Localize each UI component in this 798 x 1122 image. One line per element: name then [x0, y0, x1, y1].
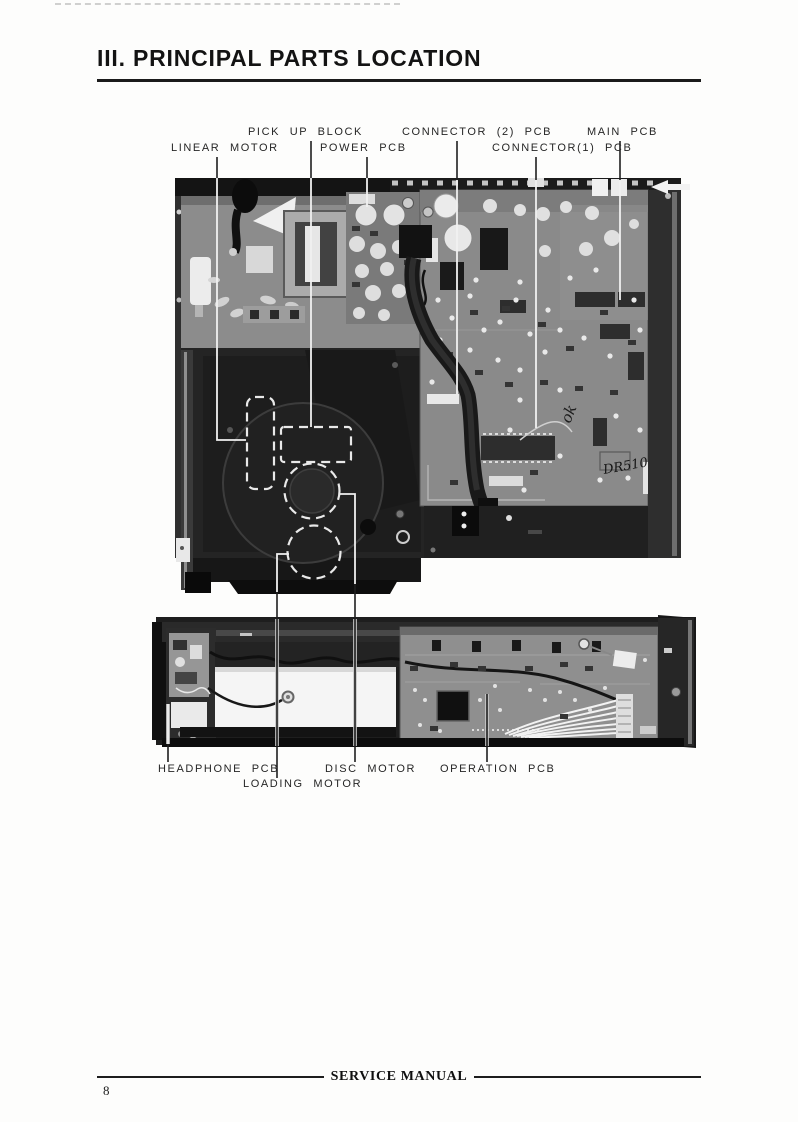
- label-pick-up-block: PICK UP BLOCK: [248, 126, 363, 139]
- headphone-pcb-area: [166, 628, 216, 742]
- bottom-chassis-band: [424, 506, 681, 558]
- label-operation-pcb: OPERATION PCB: [440, 763, 555, 776]
- power-transformer: [284, 211, 348, 297]
- label-linear-motor: LINEAR MOTOR: [171, 142, 279, 155]
- photo-front-panel-rear-view: [152, 615, 696, 748]
- label-loading-motor: LOADING MOTOR: [243, 778, 362, 791]
- footer-rule-left: [97, 1076, 324, 1078]
- main-pcb-board: ok DR5100: [399, 178, 657, 524]
- disc-mechanism-area: [176, 348, 424, 593]
- photo-chassis-top-view: ok DR5100: [175, 178, 690, 594]
- footer-rule-right: [474, 1076, 701, 1078]
- label-connector2-pcb: CONNECTOR (2) PCB: [402, 126, 552, 139]
- footer-text: SERVICE MANUAL: [331, 1069, 468, 1085]
- label-main-pcb: MAIN PCB: [587, 126, 658, 139]
- operation-ic: [437, 691, 469, 721]
- right-chassis-edge: [648, 180, 690, 558]
- panel-right-end: [658, 618, 694, 746]
- display-window-opening: [215, 667, 396, 727]
- footer: SERVICE MANUAL: [97, 1069, 701, 1085]
- operation-pcb-board: [400, 627, 658, 741]
- page-number: 8: [103, 1083, 110, 1099]
- label-power-pcb: POWER PCB: [320, 142, 407, 155]
- service-manual-page: III. PRINCIPAL PARTS LOCATION: [0, 0, 798, 1122]
- label-disc-motor: DISC MOTOR: [325, 763, 416, 776]
- label-connector1-pcb: CONNECTOR(1) PCB: [492, 142, 632, 155]
- label-headphone-pcb: HEADPHONE PCB: [158, 763, 279, 776]
- parts-location-diagram: ok DR5100: [0, 0, 798, 1122]
